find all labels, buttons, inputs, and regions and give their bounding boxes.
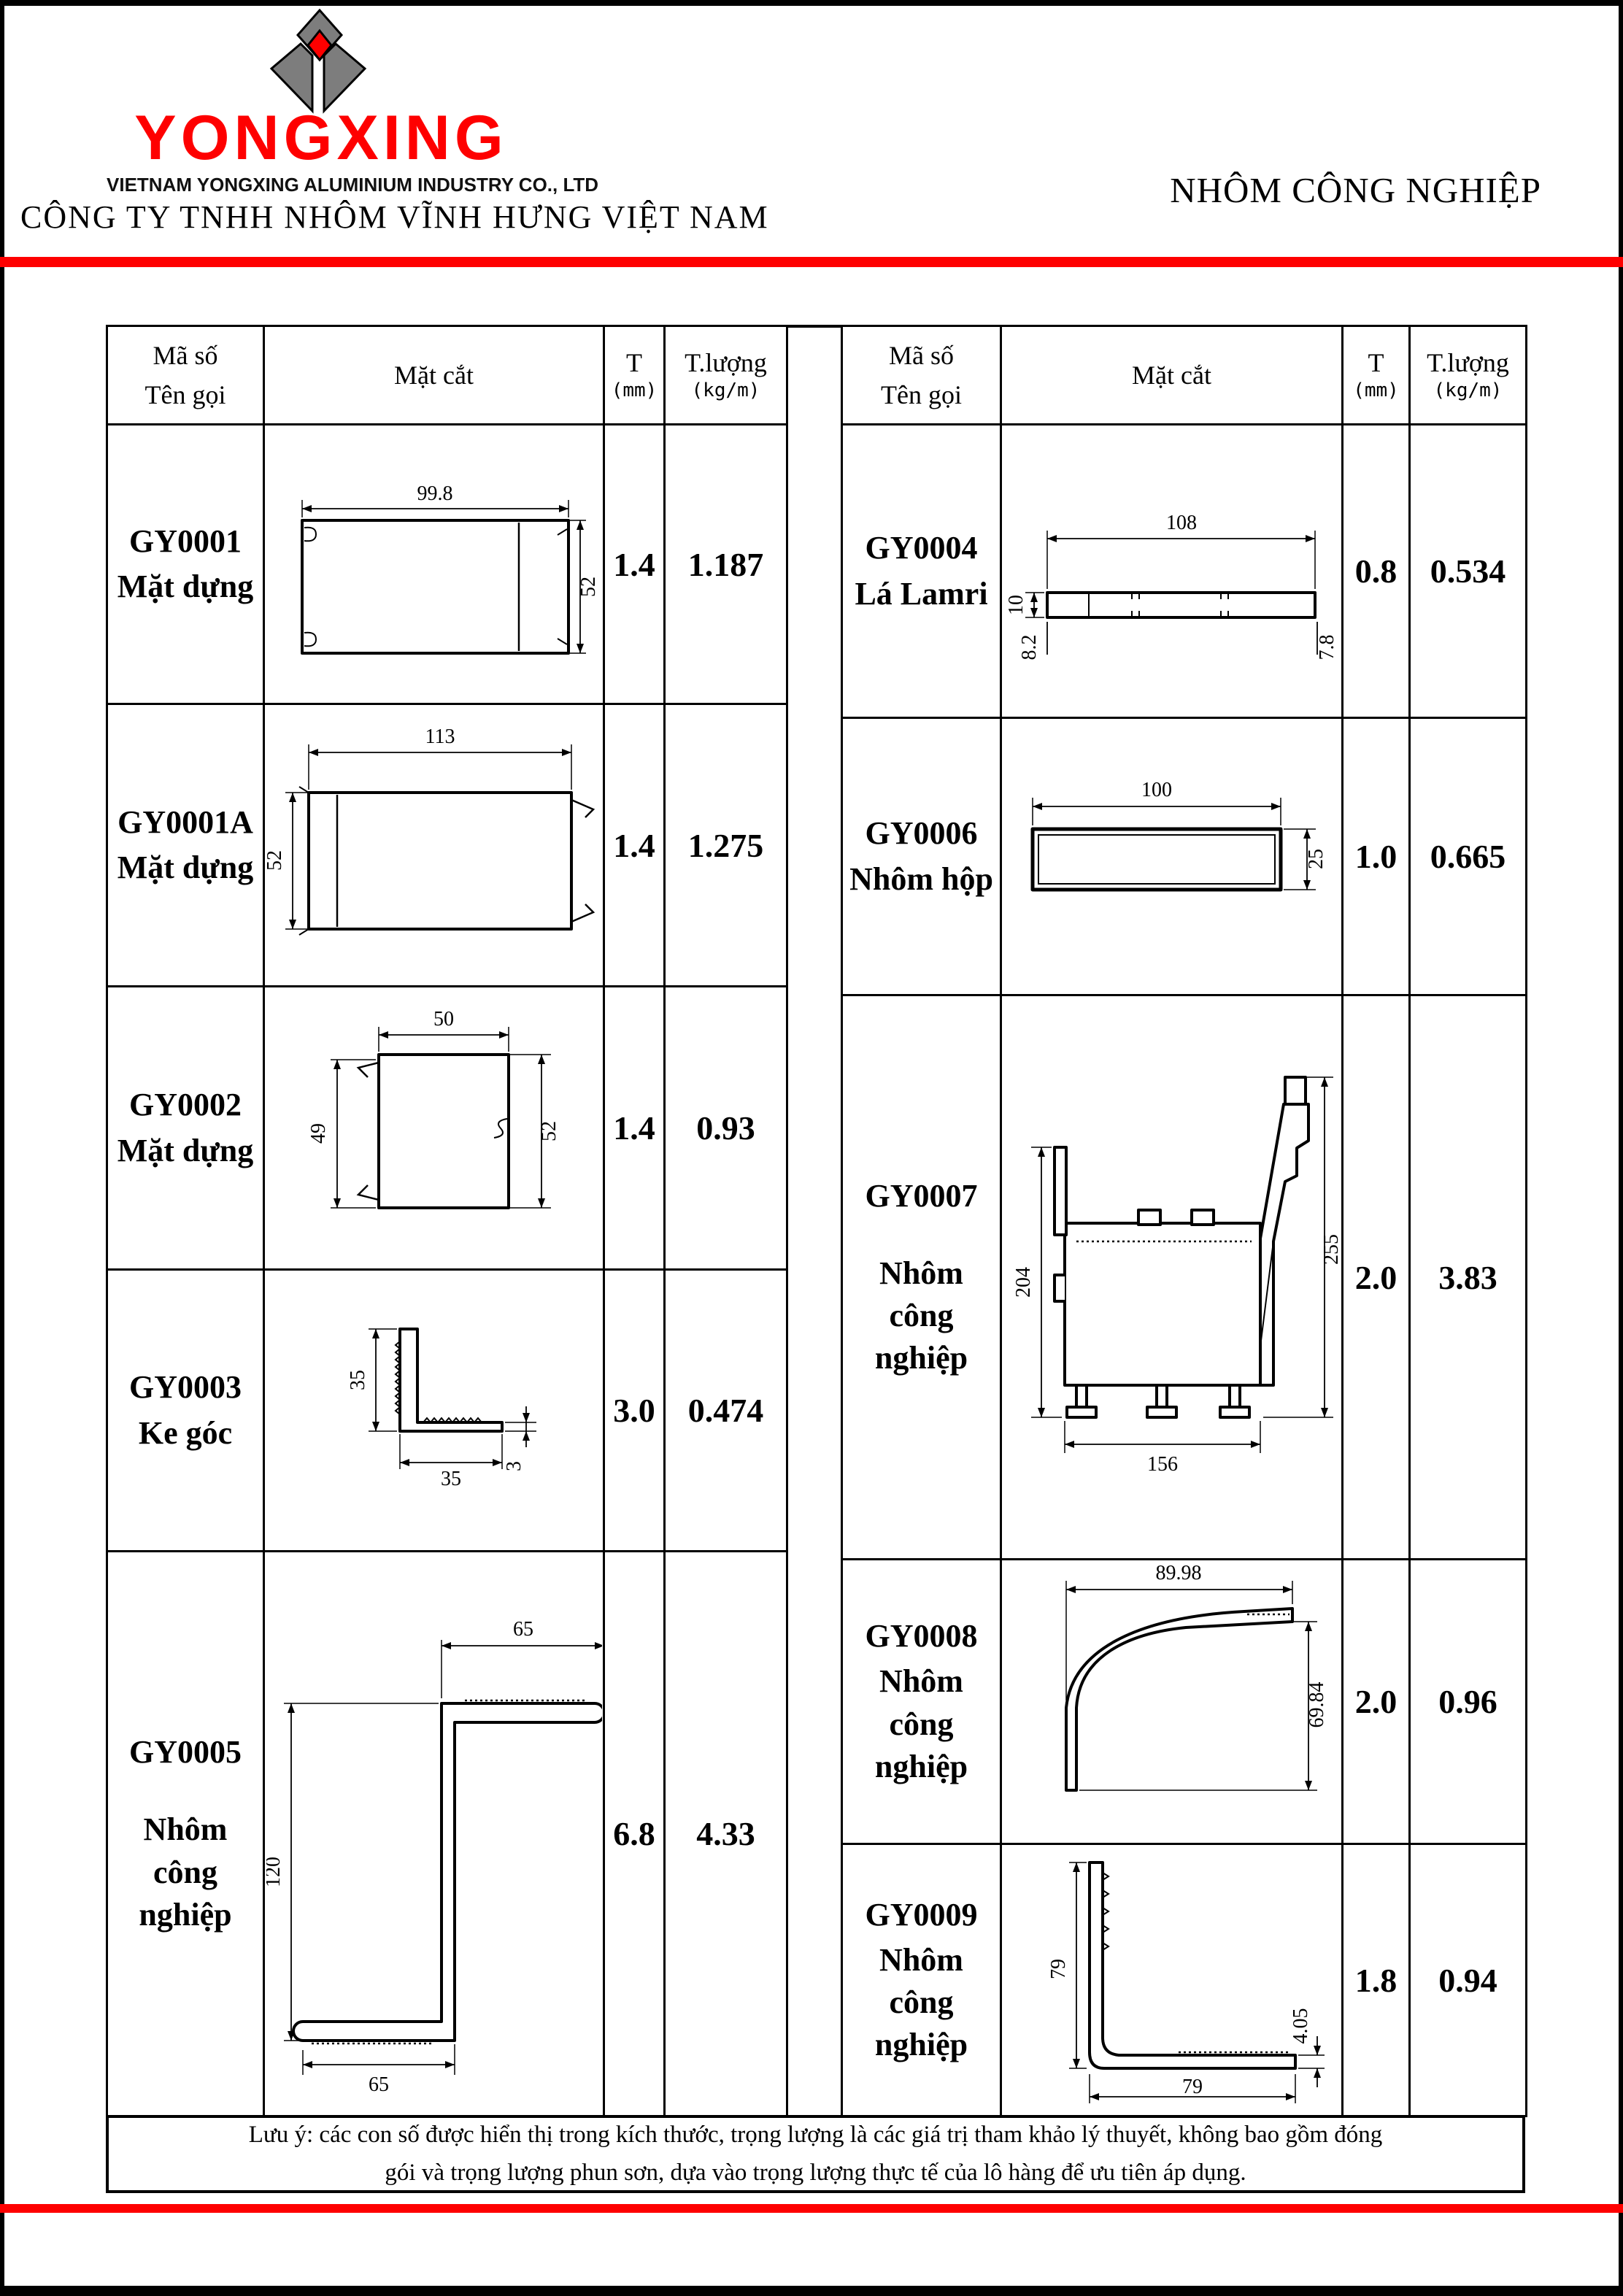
table-header-row: Mã sốTên gọi Mặt cắt T (mm) T.lượng (kg/… [842,326,1527,425]
svg-text:156: 156 [1147,1453,1178,1476]
brand-wordmark: YONGXING [107,107,536,169]
brand-subtitle: VIETNAM YONGXING ALUMINIUM INDUSTRY CO.,… [107,174,536,196]
svg-text:4.05: 4.05 [1289,2008,1312,2043]
svg-text:8.2: 8.2 [1018,634,1041,660]
product-name: Ke góc [108,1412,263,1455]
weight-value: 0.96 [1410,1560,1527,1844]
profile-gy0006-drawing: 100 25 [1003,720,1341,993]
svg-text:204: 204 [1012,1267,1035,1298]
product-code-name: GY0001 Mặt dựng [107,425,264,704]
table-gap-top-line [782,325,844,328]
note-line-2: gói và trọng lượng phun sơn, dựa vào trọ… [109,2154,1522,2192]
table-row: GY0009 Nhôm công nghiệp 79 79 [842,1844,1527,2116]
section-drawing: 100 25 [1001,718,1343,995]
section-drawing: 99.8 52 [264,425,604,704]
weight-value: 0.94 [1410,1844,1527,2116]
product-code: GY0001A [108,801,263,844]
svg-text:35: 35 [441,1468,461,1490]
table-header-row: Mã sốTên gọi Mặt cắt T (mm) T.lượng (kg/… [107,326,787,425]
product-code-name: GY0008 Nhôm công nghiệp [842,1560,1001,1844]
svg-text:52: 52 [577,577,600,597]
catalog-page: YONGXING VIETNAM YONGXING ALUMINIUM INDU… [0,0,1623,2296]
svg-text:35: 35 [347,1370,369,1390]
section-drawing: 204 255 156 [1001,995,1343,1560]
svg-text:25: 25 [1305,849,1327,869]
thickness-value: 3.0 [604,1270,665,1552]
product-name: Nhôm công nghiệp [843,1252,1000,1379]
header-weight: T.lượng (kg/m) [1410,326,1527,425]
table-row: GY0007 Nhôm công nghiệp [842,995,1527,1560]
yongxing-logo-icon [259,9,383,118]
header-weight: T.lượng (kg/m) [665,326,787,425]
thickness-value: 1.8 [1343,1844,1410,2116]
profile-table-left: Mã sốTên gọi Mặt cắt T (mm) T.lượng (kg/… [106,325,788,2117]
table-row: GY0006 Nhôm hộp 100 25 1.0 0.665 [842,718,1527,995]
weight-value: 0.534 [1410,425,1527,718]
product-name: Nhôm công nghiệp [108,1808,263,1935]
section-drawing: 113 52 [264,704,604,987]
thickness-value: 1.4 [604,425,665,704]
profile-gy0009-drawing: 79 79 4.05 [1003,1846,1341,2114]
table-row: GY0008 Nhôm công nghiệp 89.98 69.84 2.0 [842,1560,1527,1844]
page-border-right [1619,0,1623,2296]
section-drawing: 89.98 69.84 [1001,1560,1343,1844]
section-drawing: 50 49 52 [264,987,604,1270]
table-row: GY0001 Mặt dựng 99.8 [107,425,787,704]
product-code: GY0008 [843,1615,1000,1657]
profile-gy0008-drawing: 89.98 69.84 [1003,1562,1341,1842]
svg-text:100: 100 [1141,779,1172,801]
product-code: GY0003 [108,1366,263,1409]
table-row: GY0004 Lá Lamri 108 10 [842,425,1527,718]
thickness-value: 2.0 [1343,995,1410,1560]
product-name: Nhôm công nghiệp [843,1660,1000,1787]
product-name: Mặt dựng [108,1130,263,1172]
category-title: NHÔM CÔNG NGHIỆP [1170,169,1541,211]
page-border-left [0,0,4,2296]
header-thickness: T (mm) [1343,326,1410,425]
header-thickness: T (mm) [604,326,665,425]
weight-value: 0.93 [665,987,787,1270]
thickness-value: 1.0 [1343,718,1410,995]
table-row: GY0002 Mặt dựng 50 49 [107,987,787,1270]
product-name: Mặt dựng [108,847,263,889]
weight-value: 4.33 [665,1552,787,2116]
note-line-1: Lưu ý: các con số được hiển thị trong kí… [109,2116,1522,2154]
svg-text:79: 79 [1182,2076,1203,2098]
svg-text:120: 120 [266,1857,285,1887]
section-drawing: 108 10 8.2 7.8 [1001,425,1343,718]
profile-gy0001a-drawing: 113 52 [266,706,602,985]
thickness-value: 1.4 [604,987,665,1270]
profile-gy0003-drawing: 35 35 3 [266,1272,602,1549]
table-row: GY0005 Nhôm công nghiệp 65 120 [107,1552,787,2116]
red-divider-bottom [0,2204,1623,2213]
thickness-value: 1.4 [604,704,665,987]
product-code: GY0007 [843,1175,1000,1217]
profile-table-right: Mã sốTên gọi Mặt cắt T (mm) T.lượng (kg/… [841,325,1527,2117]
svg-text:69.84: 69.84 [1306,1681,1328,1727]
header-section: Mặt cắt [1001,326,1343,425]
product-name: Mặt dựng [108,566,263,608]
product-code-name: GY0009 Nhôm công nghiệp [842,1844,1001,2116]
svg-text:99.8: 99.8 [417,482,452,505]
section-drawing: 35 35 3 [264,1270,604,1552]
note-box: Lưu ý: các con số được hiển thị trong kí… [106,2115,1525,2193]
thickness-value: 6.8 [604,1552,665,2116]
svg-text:50: 50 [433,1008,454,1030]
weight-value: 0.474 [665,1270,787,1552]
weight-value: 3.83 [1410,995,1527,1560]
header-section: Mặt cắt [264,326,604,425]
profile-gy0005-drawing: 65 120 65 [266,1554,602,2114]
company-name: CÔNG TY TNHH NHÔM VĨNH HƯNG VIỆT NAM [20,199,769,236]
product-code-name: GY0004 Lá Lamri [842,425,1001,718]
table-row: GY0003 Ke góc 35 35 [107,1270,787,1552]
product-name: Lá Lamri [843,573,1000,615]
product-code: GY0001 [108,520,263,563]
product-code-name: GY0005 Nhôm công nghiệp [107,1552,264,2116]
red-divider-top [0,257,1623,267]
profile-gy0002-drawing: 50 49 52 [266,989,602,1268]
table-row: GY0001A Mặt dựng 113 [107,704,787,987]
page-border-top [0,0,1623,6]
product-code-name: GY0001A Mặt dựng [107,704,264,987]
product-name: Nhôm công nghiệp [843,1939,1000,2066]
product-code-name: GY0007 Nhôm công nghiệp [842,995,1001,1560]
product-code: GY0006 [843,812,1000,855]
profile-gy0007-drawing: 204 255 156 [1003,998,1341,1557]
section-drawing: 65 120 65 [264,1552,604,2116]
svg-text:79: 79 [1047,1959,1070,1979]
svg-text:255: 255 [1320,1234,1341,1265]
page-border-bottom [0,2286,1623,2296]
svg-text:108: 108 [1166,512,1197,534]
product-code-name: GY0003 Ke góc [107,1270,264,1552]
svg-text:49: 49 [307,1123,330,1144]
product-code: GY0002 [108,1084,263,1126]
product-code: GY0005 [108,1731,263,1773]
svg-text:65: 65 [369,2073,389,2096]
svg-text:52: 52 [266,850,286,871]
weight-value: 1.275 [665,704,787,987]
header-code: Mã sốTên gọi [842,326,1001,425]
svg-text:65: 65 [513,1618,533,1641]
product-code-name: GY0002 Mặt dựng [107,987,264,1270]
svg-text:10: 10 [1005,595,1028,615]
profile-gy0004-drawing: 108 10 8.2 7.8 [1003,427,1341,716]
product-code-name: GY0006 Nhôm hộp [842,718,1001,995]
weight-value: 0.665 [1410,718,1527,995]
section-drawing: 79 79 4.05 [1001,1844,1343,2116]
svg-text:52: 52 [538,1121,560,1141]
profile-gy0001-drawing: 99.8 52 [266,427,602,702]
svg-text:7.8: 7.8 [1316,634,1338,660]
product-code: GY0009 [843,1894,1000,1936]
thickness-value: 2.0 [1343,1560,1410,1844]
weight-value: 1.187 [665,425,787,704]
svg-text:113: 113 [425,725,455,748]
svg-text:89.98: 89.98 [1155,1562,1201,1584]
product-code: GY0004 [843,527,1000,569]
thickness-value: 0.8 [1343,425,1410,718]
product-name: Nhôm hộp [843,858,1000,901]
header-code: Mã sốTên gọi [107,326,264,425]
svg-text:3: 3 [503,1461,525,1471]
